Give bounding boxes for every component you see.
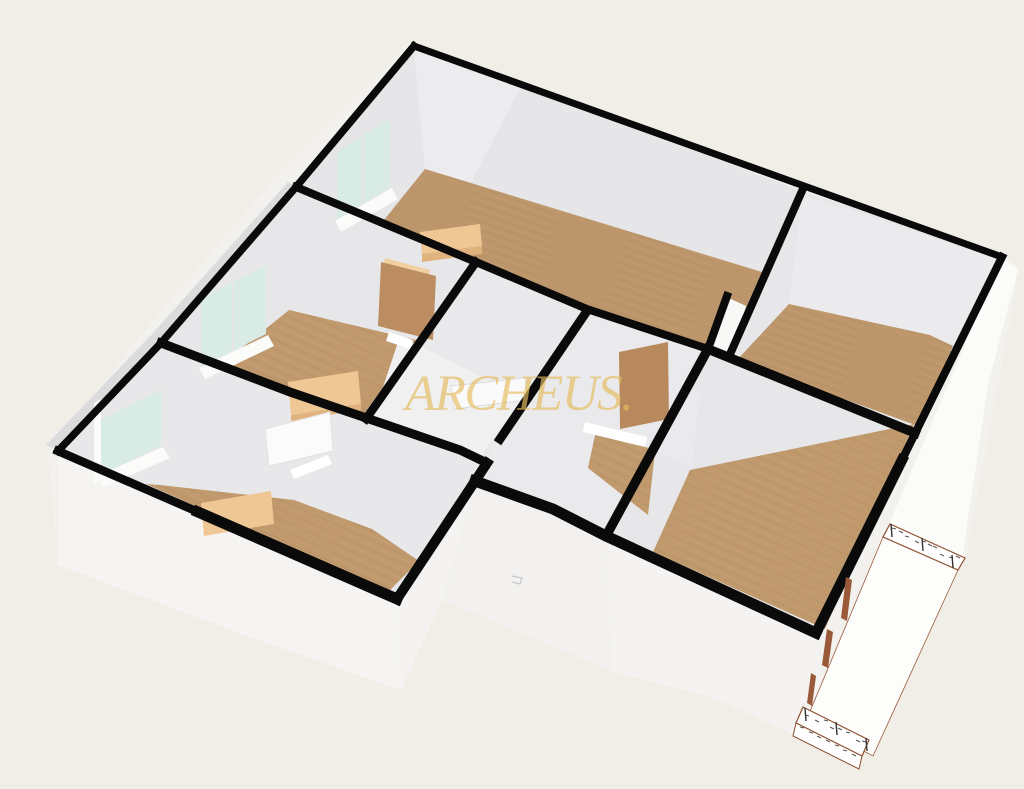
svg-text:ARCHEUS.: ARCHEUS.: [402, 366, 632, 422]
